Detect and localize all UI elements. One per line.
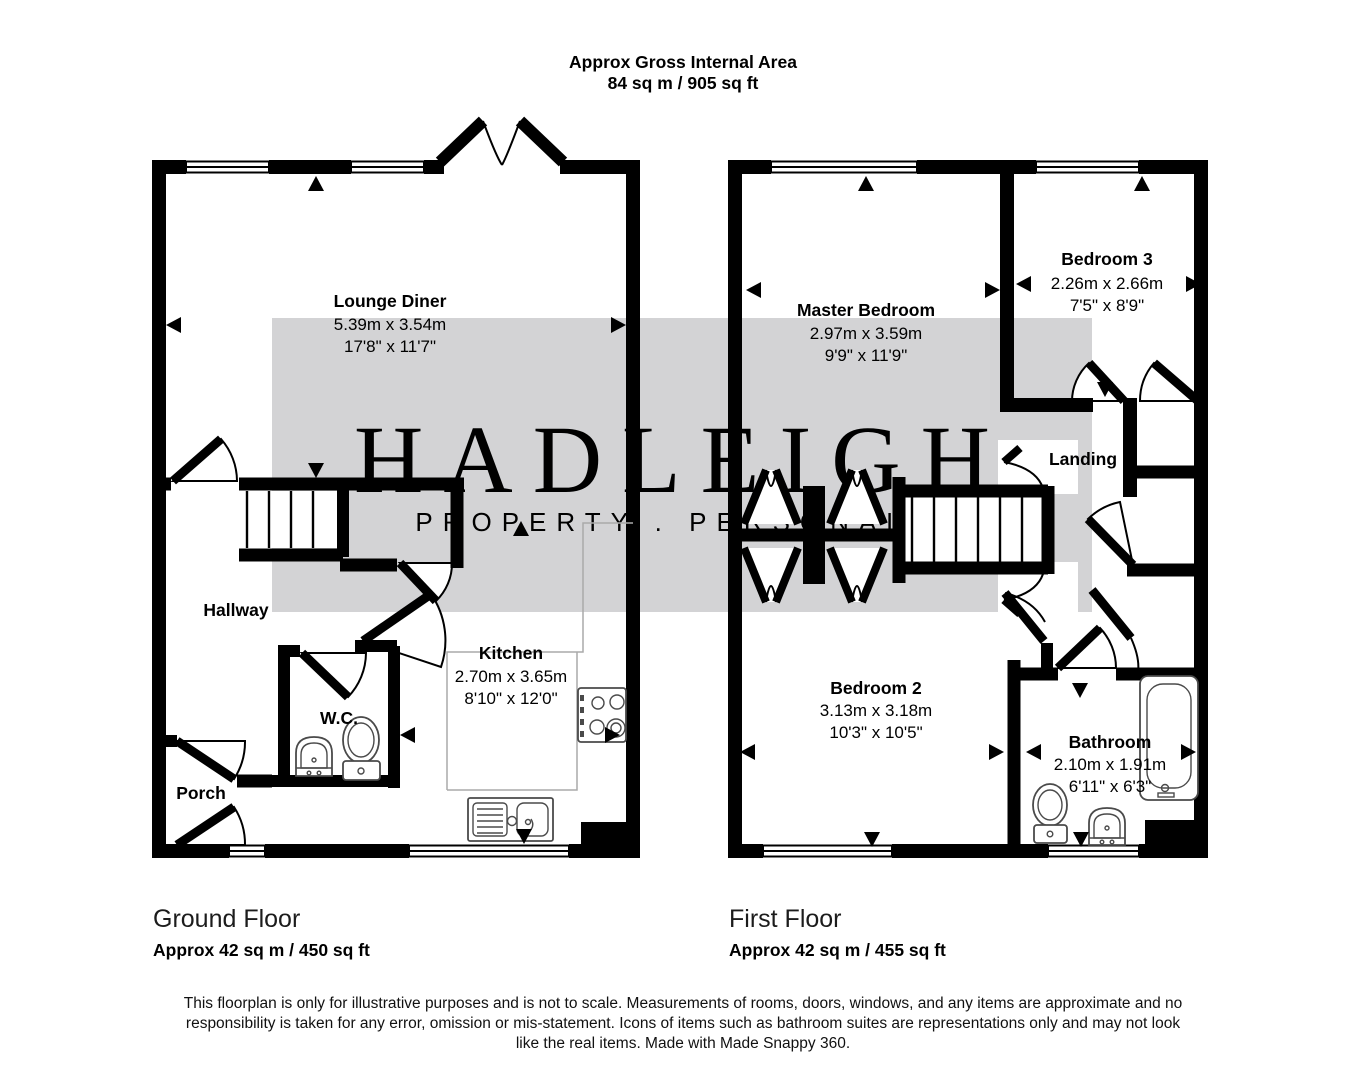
room-label-bedroom3: Bedroom 3: [1061, 249, 1153, 269]
hob-knob: [580, 695, 584, 701]
room-label-master: Master Bedroom: [797, 300, 935, 320]
room-dim-metric: 2.10m x 1.91m: [1054, 755, 1166, 774]
disclaimer-text: This floorplan is only for illustrative …: [178, 994, 1188, 1054]
room-label-bedroom2: Bedroom 2: [830, 678, 922, 698]
room-dim-metric: 5.39m x 3.54m: [334, 315, 446, 334]
floorplan-page: Approx Gross Internal Area 84 sq m / 905…: [0, 0, 1365, 1080]
room-dim-metric: 2.70m x 3.65m: [455, 667, 567, 686]
room-label-kitchen: Kitchen: [479, 643, 543, 663]
wall-corner-block: [581, 822, 640, 858]
kitchen-sink-icon: [468, 798, 553, 841]
room-label-landing: Landing: [1049, 449, 1117, 469]
hob-knob: [580, 707, 584, 713]
stairs-area: [899, 497, 1042, 562]
wall-corner-block: [1145, 820, 1201, 858]
hob-knob: [580, 719, 584, 725]
wc-sink-icon: [296, 737, 332, 776]
floorplan-canvas: Approx Gross Internal Area 84 sq m / 905…: [0, 0, 1365, 1080]
ground-floor-title: Ground Floor: [153, 905, 300, 933]
room-dim-metric: 3.13m x 3.18m: [820, 701, 932, 720]
gross-area-value: 84 sq m / 905 sq ft: [608, 73, 759, 93]
room-dim-imperial: 7'5" x 8'9": [1070, 296, 1144, 315]
room-label-porch: Porch: [176, 783, 226, 803]
gross-area-title: Approx Gross Internal Area: [569, 52, 797, 72]
bathroom-sink-icon: [1089, 808, 1125, 845]
room-dim-imperial: 8'10" x 12'0": [464, 689, 557, 708]
room-dim-imperial: 10'3" x 10'5": [829, 723, 922, 742]
hob-knob: [580, 731, 584, 737]
room-dim-imperial: 9'9" x 11'9": [825, 346, 908, 365]
bathroom-toilet-icon: [1033, 784, 1067, 843]
room-dim-metric: 2.97m x 3.59m: [810, 324, 922, 343]
room-dim-imperial: 17'8" x 11'7": [344, 337, 436, 356]
room-label-wc: W.C.: [320, 708, 358, 728]
room-label-bathroom: Bathroom: [1069, 732, 1152, 752]
room-label-lounge: Lounge Diner: [334, 291, 447, 311]
first-floor-area: Approx 42 sq m / 455 sq ft: [729, 940, 946, 960]
first-floor-title: First Floor: [729, 905, 842, 933]
toilet-cistern: [343, 761, 380, 780]
ground-floor-area: Approx 42 sq m / 450 sq ft: [153, 940, 370, 960]
toilet-cistern: [1034, 825, 1067, 843]
room-label-hallway: Hallway: [203, 600, 268, 620]
sink-unit-outline: [468, 798, 553, 841]
hob-outline: [578, 688, 626, 742]
room-dim-metric: 2.26m x 2.66m: [1051, 274, 1163, 293]
hob-icon: [578, 688, 626, 742]
room-dim-imperial: 6'11" x 6'3": [1069, 777, 1152, 796]
